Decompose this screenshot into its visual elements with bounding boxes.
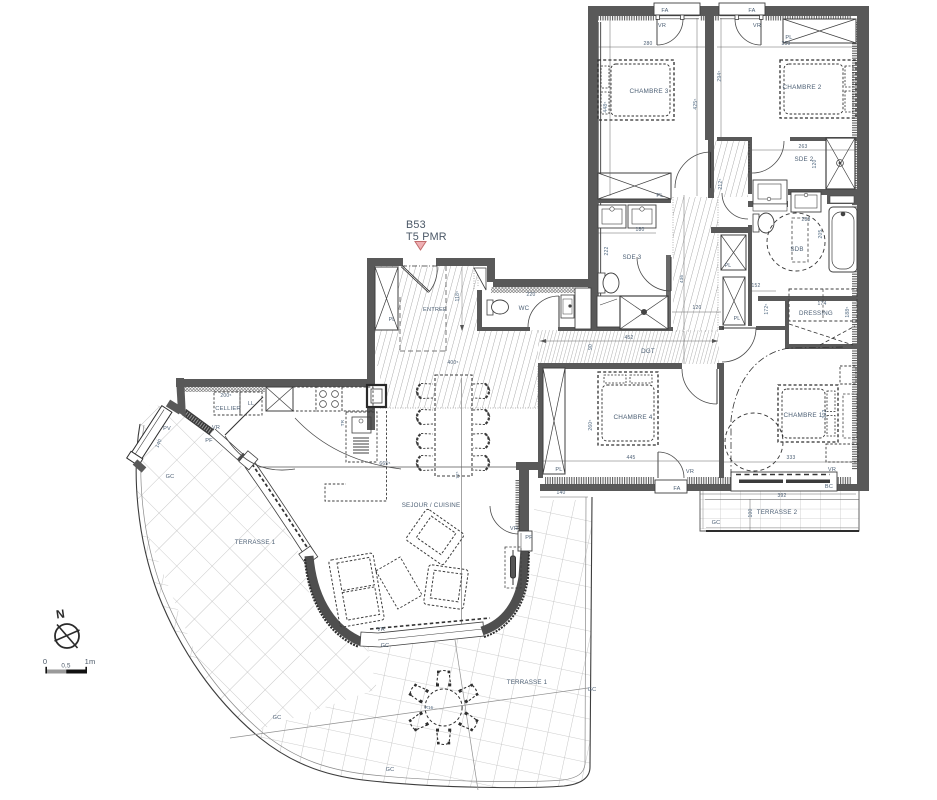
svg-text:GC: GC xyxy=(386,767,395,773)
svg-text:180: 180 xyxy=(636,227,645,233)
svg-text:118⁵: 118⁵ xyxy=(455,291,461,302)
svg-text:436: 436 xyxy=(679,275,684,284)
svg-text:VR: VR xyxy=(828,467,836,473)
svg-text:TERRASSE 2: TERRASSE 2 xyxy=(757,509,798,516)
svg-text:152: 152 xyxy=(752,283,761,289)
svg-text:445: 445 xyxy=(627,455,636,461)
svg-text:WC: WC xyxy=(519,305,530,312)
svg-text:CHAMBRE 2: CHAMBRE 2 xyxy=(782,84,821,91)
svg-text:174: 174 xyxy=(818,301,827,307)
svg-text:GC: GC xyxy=(381,643,390,649)
svg-text:400⁵: 400⁵ xyxy=(447,360,458,366)
svg-text:SDB: SDB xyxy=(790,246,803,253)
svg-text:GC: GC xyxy=(712,520,721,526)
svg-text:CELLIER: CELLIER xyxy=(215,406,241,412)
svg-text:VR: VR xyxy=(377,627,385,633)
svg-text:PL: PL xyxy=(725,263,732,269)
svg-text:TR: TR xyxy=(340,419,345,426)
svg-text:BC: BC xyxy=(825,484,833,490)
svg-text:280: 280 xyxy=(644,41,653,47)
svg-text:200⁵: 200⁵ xyxy=(220,393,231,399)
svg-text:PL: PL xyxy=(555,467,562,473)
svg-text:120: 120 xyxy=(812,160,818,169)
svg-text:283: 283 xyxy=(802,217,811,223)
svg-text:VR: VR xyxy=(753,23,761,29)
svg-text:PF: PF xyxy=(525,535,533,541)
svg-text:FA: FA xyxy=(661,8,668,14)
svg-text:PV: PV xyxy=(163,426,171,432)
svg-text:FA: FA xyxy=(673,486,680,492)
svg-text:425⁵: 425⁵ xyxy=(693,98,699,109)
svg-text:333: 333 xyxy=(787,455,796,461)
svg-text:665⁵: 665⁵ xyxy=(379,461,390,467)
svg-text:GC: GC xyxy=(588,687,597,693)
svg-text:72⁵: 72⁵ xyxy=(455,471,460,478)
svg-text:SDE 2: SDE 2 xyxy=(795,156,814,163)
svg-text:PL: PL xyxy=(785,35,792,41)
svg-text:90: 90 xyxy=(588,344,594,350)
svg-text:350: 350 xyxy=(782,41,791,47)
svg-text:SDE 3: SDE 3 xyxy=(623,254,642,261)
svg-text:TERRASSE 1: TERRASSE 1 xyxy=(235,539,276,546)
svg-text:220: 220 xyxy=(527,292,536,298)
svg-text:TERRASSE 1: TERRASSE 1 xyxy=(507,679,548,686)
svg-text:140: 140 xyxy=(557,490,566,496)
svg-text:PL: PL xyxy=(389,317,396,323)
svg-text:302: 302 xyxy=(822,410,828,419)
svg-text:B53: B53 xyxy=(406,219,426,231)
svg-text:SEJOUR / CUISINE: SEJOUR / CUISINE xyxy=(402,502,461,509)
svg-text:0: 0 xyxy=(43,657,47,666)
svg-text:PL: PL xyxy=(734,316,741,322)
svg-text:VR: VR xyxy=(658,23,666,29)
svg-text:1m: 1m xyxy=(85,657,96,666)
svg-text:0,5: 0,5 xyxy=(61,663,71,670)
svg-text:VR: VR xyxy=(686,469,694,475)
svg-text:PF: PF xyxy=(205,438,213,444)
svg-text:100: 100 xyxy=(748,509,754,518)
svg-text:FA: FA xyxy=(748,8,755,14)
svg-text:188⁵: 188⁵ xyxy=(845,306,851,317)
svg-text:DGT: DGT xyxy=(641,348,655,355)
svg-text:294⁵: 294⁵ xyxy=(717,70,723,81)
svg-text:392: 392 xyxy=(778,493,787,499)
svg-text:CHAMBRE 3: CHAMBRE 3 xyxy=(629,88,668,95)
svg-text:CHAMBRE 1: CHAMBRE 1 xyxy=(783,412,822,419)
svg-text:DRESSING: DRESSING xyxy=(799,310,833,317)
svg-text:GC: GC xyxy=(166,474,175,480)
svg-text:222: 222 xyxy=(604,247,610,256)
svg-text:ENTREE: ENTREE xyxy=(423,307,447,313)
svg-text:LL: LL xyxy=(248,401,254,407)
svg-text:260⁵: 260⁵ xyxy=(588,419,594,430)
svg-text:452: 452 xyxy=(625,335,634,341)
svg-text:120: 120 xyxy=(693,305,702,311)
svg-text:GC: GC xyxy=(273,715,282,721)
svg-text:N: N xyxy=(55,606,66,621)
svg-text:205: 205 xyxy=(818,230,824,239)
svg-text:172⁵: 172⁵ xyxy=(764,303,770,314)
svg-text:212⁵: 212⁵ xyxy=(718,178,724,189)
svg-text:VR: VR xyxy=(212,425,220,431)
svg-text:448⁵: 448⁵ xyxy=(603,101,609,112)
svg-text:PL: PL xyxy=(656,193,663,199)
svg-text:CHAMBRE 4: CHAMBRE 4 xyxy=(613,414,652,421)
svg-text:263: 263 xyxy=(799,144,808,150)
svg-text:VR: VR xyxy=(510,526,518,532)
svg-text:R16: R16 xyxy=(425,705,434,710)
